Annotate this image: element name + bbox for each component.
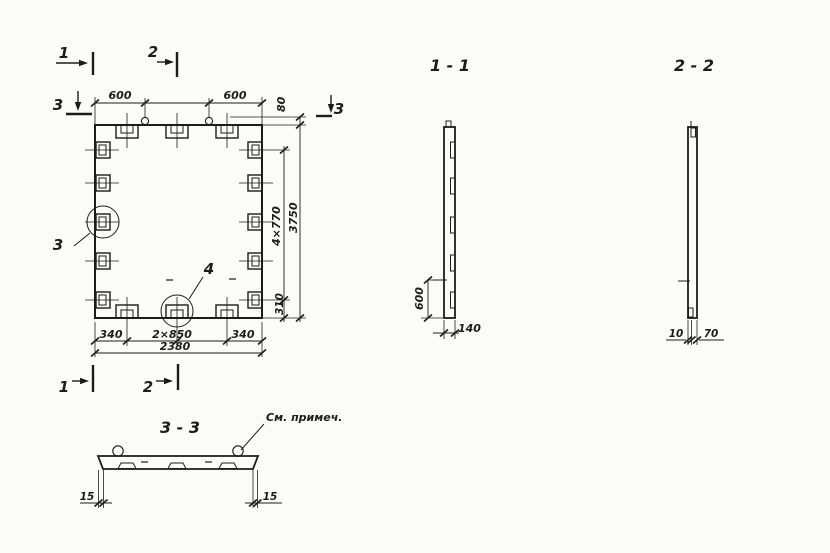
cut-mark-2-top: 2 bbox=[148, 43, 177, 77]
section-2-2: 2 - 2 10 70 bbox=[666, 56, 724, 345]
lifting-loop bbox=[205, 117, 212, 124]
dim-bottom-left: 340 bbox=[100, 328, 123, 341]
section-1-1: 1 - 1 600 140 bbox=[413, 56, 481, 339]
cut-mark-1-top: 1 bbox=[56, 44, 93, 75]
arrowhead bbox=[165, 59, 174, 65]
bottom-recesses bbox=[118, 463, 237, 469]
drawing-sheet: 3 4 1 2 3 bbox=[0, 0, 830, 553]
dim-height-total: 3750 bbox=[287, 202, 300, 233]
section-2-2-title: 2 - 2 bbox=[674, 56, 714, 75]
section-3-3-title: 3 - 3 bbox=[160, 418, 200, 437]
leader-line bbox=[189, 277, 203, 299]
leader-line bbox=[241, 424, 264, 450]
lifting-loop bbox=[113, 446, 123, 456]
svg-text:3: 3 bbox=[53, 96, 63, 114]
svg-text:3: 3 bbox=[334, 100, 344, 118]
embedded-plate bbox=[85, 253, 119, 269]
dim-top-right: 600 bbox=[224, 89, 247, 102]
recess bbox=[168, 463, 186, 469]
plan-dimensions: 600 600 80 3750 4×770 310 340 2×850 bbox=[91, 89, 306, 357]
section-3-3-dimensions: 15 15 bbox=[80, 470, 282, 508]
dim-15-right: 15 bbox=[263, 491, 278, 503]
svg-text:2: 2 bbox=[143, 378, 153, 396]
recess bbox=[219, 463, 237, 469]
dim-600: 600 bbox=[413, 287, 426, 310]
dim-width-total: 2380 bbox=[160, 340, 191, 353]
arrowhead bbox=[164, 378, 173, 384]
cut-mark-1-bottom: 1 bbox=[59, 365, 93, 396]
section-3-3: 3 - 3 См. примеч. 15 15 bbox=[80, 411, 343, 508]
cut-mark-3-left: 3 bbox=[53, 91, 92, 114]
embedded-plate bbox=[239, 214, 273, 230]
svg-text:2: 2 bbox=[148, 43, 158, 61]
cut-mark-3-right: 3 bbox=[316, 95, 344, 118]
technical-drawing: 3 4 1 2 3 bbox=[0, 0, 830, 553]
leader-line bbox=[74, 233, 90, 246]
embedded-plate bbox=[85, 214, 119, 230]
embedded-plate bbox=[239, 142, 290, 158]
svg-text:1: 1 bbox=[59, 378, 69, 396]
dim-140: 140 bbox=[458, 322, 481, 335]
section-1-1-dimensions: 600 140 bbox=[413, 277, 481, 340]
lifting-loop bbox=[141, 117, 148, 124]
embedded-plate bbox=[239, 253, 273, 269]
section-2-2-dimensions: 10 70 bbox=[666, 320, 724, 345]
embedded-plate bbox=[85, 292, 119, 308]
dim-side-spacing: 4×770 bbox=[270, 206, 283, 247]
section-1-1-title: 1 - 1 bbox=[430, 56, 470, 75]
lifting-loop bbox=[233, 446, 243, 456]
embedded-plate bbox=[85, 142, 119, 158]
plan-view: 3 4 1 2 3 bbox=[53, 43, 344, 396]
panel-section-body bbox=[688, 127, 697, 318]
dim-10: 10 bbox=[669, 328, 684, 340]
dim-side-bottom: 310 bbox=[274, 293, 286, 315]
dim-top-left: 600 bbox=[109, 89, 132, 102]
svg-text:1: 1 bbox=[59, 44, 69, 62]
panel-section-body bbox=[444, 127, 455, 318]
dim-bottom-right: 340 bbox=[232, 328, 255, 341]
top-embedded-plates bbox=[116, 113, 238, 148]
embedded-plate bbox=[239, 175, 273, 191]
arrowhead bbox=[80, 378, 89, 384]
left-embedded-plates bbox=[85, 142, 119, 308]
dim-15-left: 15 bbox=[80, 491, 95, 503]
see-note-label: См. примеч. bbox=[266, 411, 342, 424]
cut-mark-2-bottom: 2 bbox=[143, 364, 178, 396]
panel-outline bbox=[95, 125, 262, 318]
top-notch bbox=[691, 128, 696, 137]
detail-3-label: 3 bbox=[53, 236, 63, 254]
arrowhead bbox=[79, 60, 88, 66]
embedded-plate bbox=[85, 175, 119, 191]
recess bbox=[118, 463, 136, 469]
bottom-notch bbox=[689, 308, 694, 317]
dim-lug-height: 80 bbox=[275, 96, 288, 112]
detail-4-label: 4 bbox=[203, 260, 214, 278]
arrowhead bbox=[75, 102, 81, 111]
dim-70: 70 bbox=[704, 328, 719, 340]
